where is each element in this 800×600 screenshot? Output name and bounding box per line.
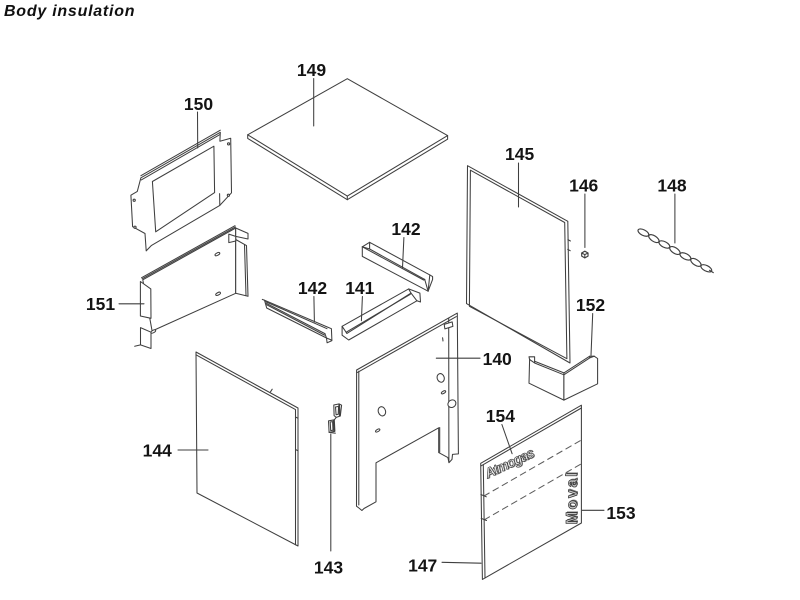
svg-text:151: 151 xyxy=(86,294,115,314)
svg-text:150: 150 xyxy=(184,94,213,114)
svg-text:147: 147 xyxy=(408,556,437,576)
svg-text:140: 140 xyxy=(483,349,512,369)
svg-text:153: 153 xyxy=(606,503,635,523)
svg-text:152: 152 xyxy=(576,295,605,315)
svg-text:141: 141 xyxy=(345,278,374,298)
svg-text:146: 146 xyxy=(569,176,598,196)
svg-text:148: 148 xyxy=(657,176,686,196)
svg-text:145: 145 xyxy=(505,144,534,164)
svg-text:142: 142 xyxy=(298,278,327,298)
svg-text:Moval: Moval xyxy=(564,473,581,525)
svg-text:143: 143 xyxy=(314,558,343,578)
svg-text:144: 144 xyxy=(143,441,172,461)
svg-text:154: 154 xyxy=(486,406,515,426)
svg-text:149: 149 xyxy=(297,60,326,80)
svg-text:Body insulation: Body insulation xyxy=(4,3,135,20)
svg-text:142: 142 xyxy=(391,219,420,239)
